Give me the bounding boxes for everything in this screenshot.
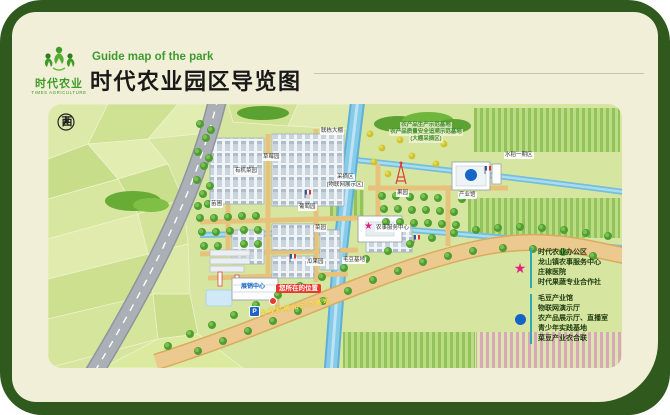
legend-item: 毛豆产业馆	[538, 294, 608, 304]
legend-star-icon: ★	[514, 261, 527, 275]
legend-dot-group: 毛豆产业馆 物联网演示厅 农产品展示厅、直播室 青少年实践基地 菜豆产业农合联	[510, 294, 620, 344]
flag-icon	[414, 235, 420, 243]
label-soybean-base: 毛豆基地	[342, 257, 366, 264]
legend-item: 菜豆产业农合联	[538, 334, 608, 344]
note-line: 农产品生产示范基地	[400, 122, 452, 129]
legend-dot-list: 毛豆产业馆 物联网演示厅 农产品展示厅、直播室 青少年实践基地 菜豆产业农合联	[530, 294, 608, 344]
label-iot-demo-area: [物联网展示区]	[326, 182, 364, 189]
park-logo-icon	[40, 44, 78, 74]
label-expo-center: 展销中心	[240, 284, 266, 291]
note-line: 农产品质量安全追溯示范基地	[389, 129, 463, 136]
logo-subtext: TIMES AGRICULTURE	[29, 91, 89, 96]
label-melon-garden: 瓜果园	[306, 259, 325, 266]
blue-dot-marker	[465, 169, 477, 181]
page-title: 时代农业园区导览图	[90, 64, 302, 96]
legend-item: 时代农业办公区	[538, 248, 601, 258]
label-nursery: 苗圃	[210, 201, 223, 208]
label-industry-hall: 产业馆	[458, 192, 477, 199]
legend-item: 时代果蔬专业合作社	[538, 278, 601, 288]
legend-item: 物联网演示厅	[538, 304, 608, 314]
compass-arrow-icon	[56, 112, 76, 132]
label-orchard: 果园	[396, 190, 409, 197]
subtitle-english: Guide map of the park	[92, 51, 213, 63]
note-line: (大棚采摘区)	[409, 136, 442, 143]
compass: 西	[56, 112, 78, 130]
header-divider	[314, 73, 644, 74]
label-multispan-greenhouse: 联栋大棚	[320, 128, 344, 135]
legend-star-list: 时代农业办公区 龙山镇农事服务中心 庄稼医院 时代果蔬专业合作社	[530, 248, 601, 288]
map-card: 时代农业 TIMES AGRICULTURE Guide map of the …	[12, 12, 658, 402]
legend-item: 农产品展示厅、直播室	[538, 314, 608, 324]
label-grape-garden: 葡萄园	[298, 204, 317, 211]
label-rice-zone: 水稻一期区	[504, 152, 534, 159]
label-picking-area: 采摘区	[336, 174, 355, 181]
brochure-frame: 时代农业 TIMES AGRICULTURE Guide map of the …	[0, 0, 670, 415]
legend-item: 青少年实践基地	[538, 324, 608, 334]
legend-item: 龙山镇农事服务中心	[538, 258, 601, 268]
label-vegetable-garden: 菜园	[314, 225, 327, 232]
pond	[206, 290, 232, 306]
star-marker-icon: ★	[364, 222, 373, 232]
park-map: 西 农产品生产示范基地 农产品质量安全追溯示范基地 (大棚采摘区) 草莓园 有机…	[48, 104, 622, 368]
label-farm-service-center: 农事服务中心	[375, 225, 410, 232]
you-are-here-banner: 您所在的位置	[276, 284, 321, 293]
park-logo: 时代农业 TIMES AGRICULTURE	[29, 44, 89, 96]
label-strawberry-garden: 草莓园	[262, 154, 281, 161]
label-organic-garden: 有机菜园	[234, 168, 258, 175]
map-notes: 农产品生产示范基地 农产品质量安全追溯示范基地 (大棚采摘区)	[366, 122, 486, 143]
legend-item: 庄稼医院	[538, 268, 601, 278]
logo-name: 时代农业	[29, 79, 89, 90]
map-legend: ★ 时代农业办公区 龙山镇农事服务中心 庄稼医院 时代果蔬专业合作社 毛豆产业馆…	[510, 248, 620, 350]
legend-star-group: ★ 时代农业办公区 龙山镇农事服务中心 庄稼医院 时代果蔬专业合作社	[510, 248, 620, 288]
legend-dot-icon	[515, 314, 526, 325]
